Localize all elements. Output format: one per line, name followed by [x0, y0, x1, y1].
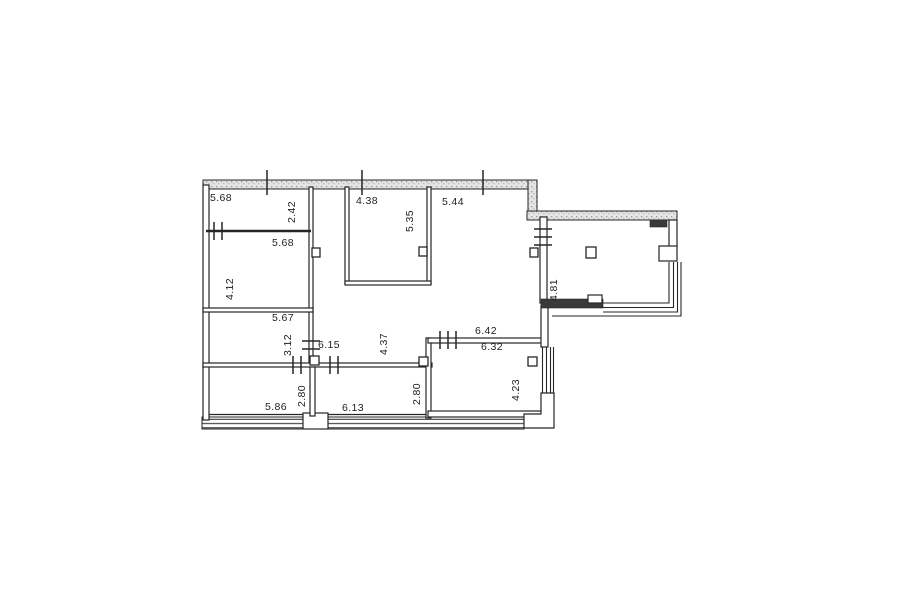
dim-room-c-width: 5.67 — [272, 313, 294, 324]
floor-plan-drawing — [0, 0, 900, 604]
dim-room-c-depth: 3.12 — [283, 334, 294, 356]
dim-dining-width-inner: 6.32 — [481, 342, 503, 353]
dim-terrace-depth: 4.81 — [549, 279, 560, 301]
dim-living-width: 5.44 — [442, 197, 464, 208]
dim-balcony2-width: 6.13 — [342, 403, 364, 414]
dim-kitchen-depth: 5.35 — [405, 210, 416, 232]
dim-room-a-depth: 2.42 — [287, 201, 298, 223]
exterior-walls — [203, 180, 677, 420]
solid-wall-pieces — [541, 220, 667, 308]
dim-hall-width: 6.15 — [318, 340, 340, 351]
dim-balcony2-depth: 2.80 — [412, 383, 423, 405]
terrace-wall-notch — [588, 295, 602, 303]
dim-balcony1-depth: 2.80 — [297, 385, 308, 407]
terrace-top-pilaster — [650, 220, 667, 227]
dim-dining-depth: 4.23 — [511, 379, 522, 401]
interior-walls — [203, 187, 554, 428]
terrace-right-pilaster — [659, 246, 677, 261]
dim-dining-width-outer: 6.42 — [475, 326, 497, 337]
left-exterior-wall — [203, 185, 209, 420]
dining-window-glazing — [543, 347, 554, 393]
dim-balcony1-width: 5.86 — [265, 402, 287, 413]
dim-room-b-width: 5.68 — [272, 238, 294, 249]
floor-plan-page: 5.68 2.42 5.68 4.12 5.67 3.12 6.15 4.37 … — [0, 0, 900, 604]
dim-hall-depth: 4.37 — [379, 333, 390, 355]
dim-room-b-depth: 4.12 — [225, 278, 236, 300]
dim-room-a-width: 5.68 — [210, 193, 232, 204]
dim-kitchen-width: 4.38 — [356, 196, 378, 207]
